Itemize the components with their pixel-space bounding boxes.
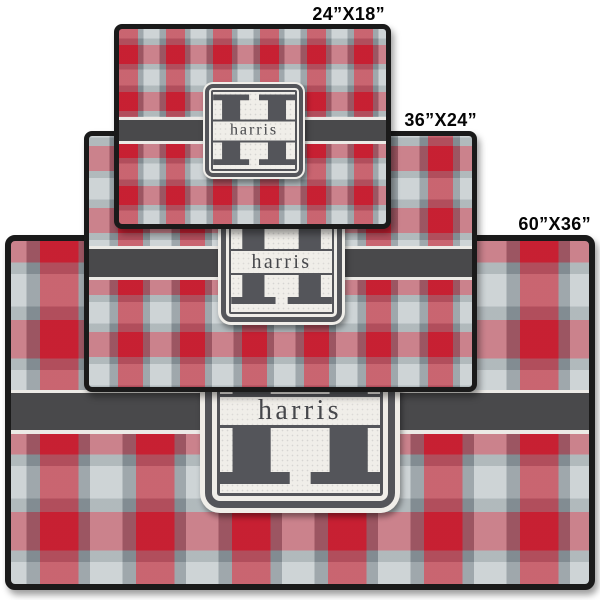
size-label-24x18: 24”X18”	[312, 4, 385, 25]
name-text: harris	[258, 397, 342, 425]
size-label-36x24: 36”X24”	[404, 110, 477, 131]
name-text: harris	[252, 252, 312, 272]
rug-preview-24x18: H harris	[114, 24, 391, 229]
name-banner: harris	[220, 394, 380, 428]
name-banner: harris	[213, 119, 295, 142]
size-label-60x36: 60”X36”	[518, 214, 591, 235]
name-banner: harris	[231, 249, 332, 275]
rug-size-preview: H harris H harris	[0, 0, 600, 600]
name-text: harris	[230, 123, 278, 139]
monogram-plaque: H harris	[203, 82, 305, 179]
plaque-border-ring: H harris	[205, 84, 303, 177]
plaque-interior: H harris	[211, 90, 297, 171]
